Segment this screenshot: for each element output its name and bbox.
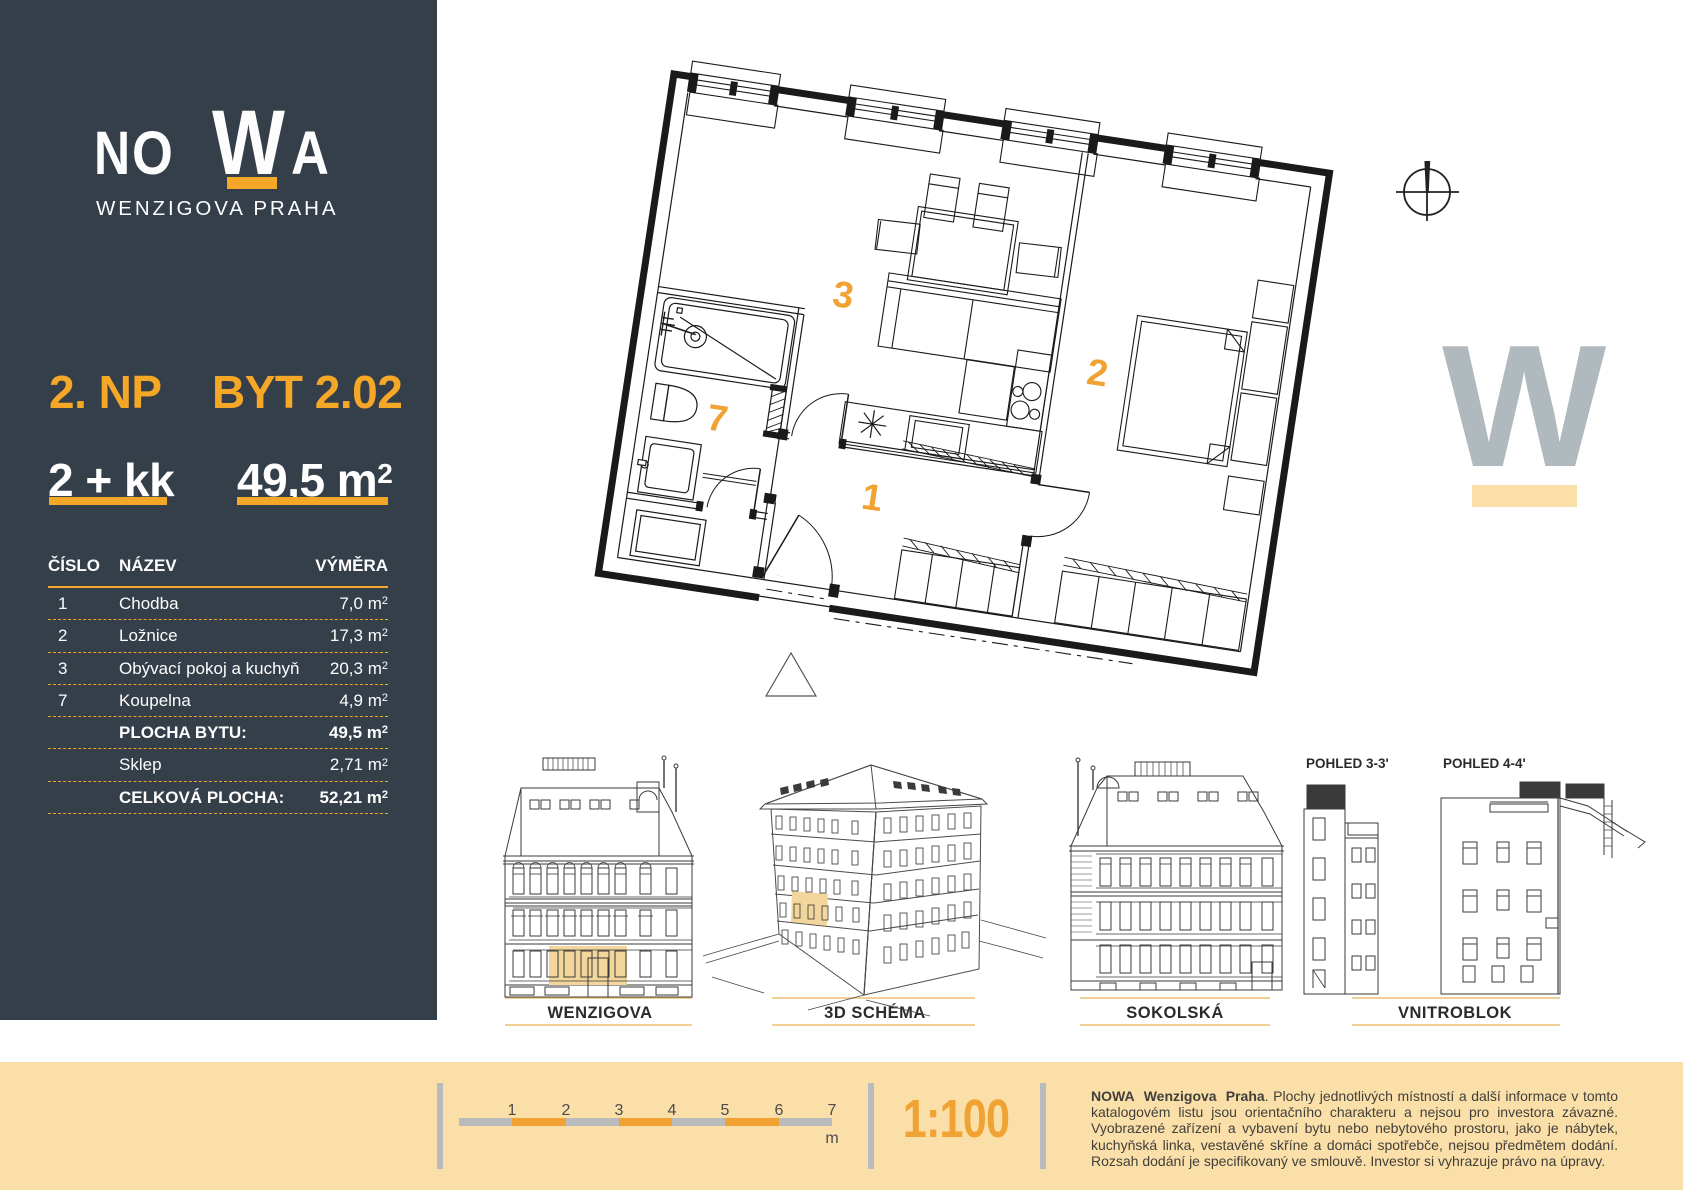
svg-text:7: 7 xyxy=(704,397,730,441)
svg-text:1: 1 xyxy=(859,476,885,520)
svg-text:3: 3 xyxy=(830,273,856,317)
svg-text:W: W xyxy=(1442,308,1607,503)
svg-text:2: 2 xyxy=(1084,351,1110,395)
